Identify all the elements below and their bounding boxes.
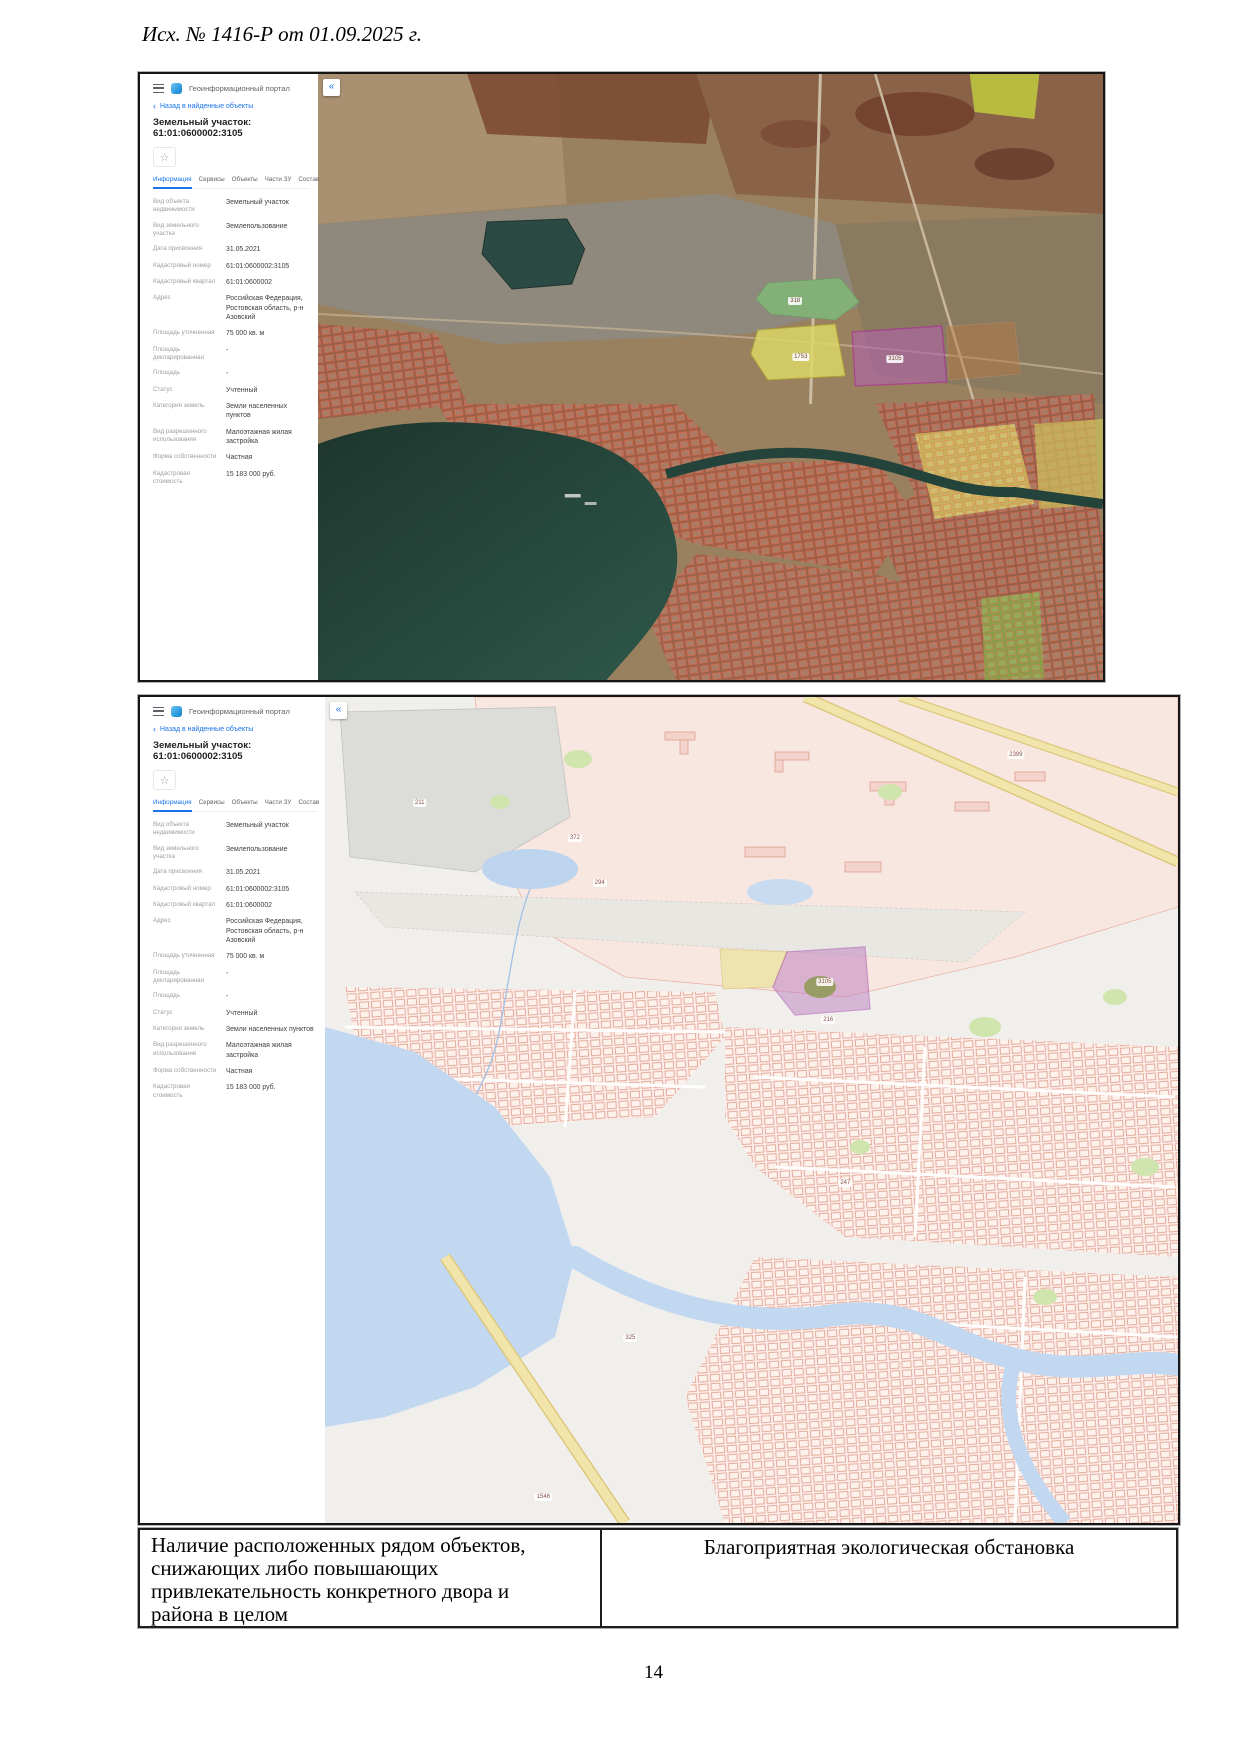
attribute-label: Дата присвоения: [153, 245, 217, 254]
back-link-label: Назад в найденные объекты: [160, 103, 253, 110]
attribute-row: Кадастровая стоимость 15 183 000 руб.: [153, 1083, 317, 1100]
app-title: Геоинформационный портал: [189, 84, 290, 93]
back-link[interactable]: ‹ Назад в найденные объекты: [153, 726, 317, 733]
tab[interactable]: Сервисы: [199, 176, 225, 183]
attribute-row: Площадь декларированная -: [153, 969, 317, 986]
criteria-table: Наличие расположенных рядом объектов, сн…: [138, 1528, 1178, 1628]
attribute-label: Площадь: [153, 992, 217, 1001]
attribute-label: Категория земель: [153, 402, 217, 421]
attribute-row: Категория земель Земли населенных пункто…: [153, 402, 310, 421]
parcel-number-label: 318: [788, 297, 802, 305]
collapse-sidebar-button[interactable]: «: [330, 702, 347, 719]
attribute-row: Площадь декларированная -: [153, 346, 310, 363]
menu-icon[interactable]: [153, 84, 164, 93]
attribute-row: Статус Учтенный: [153, 1009, 317, 1018]
attribute-label: Дата присвоения: [153, 868, 217, 877]
tab[interactable]: Объекты: [232, 176, 258, 183]
star-icon: ☆: [160, 774, 170, 787]
attribute-value: Частная: [226, 453, 310, 462]
attribute-row: Кадастровый номер 61:01:0600002:3105: [153, 262, 310, 271]
attribute-label: Кадастровый номер: [153, 262, 217, 271]
tab[interactable]: Сервисы: [199, 799, 225, 806]
tab[interactable]: Состав: [298, 176, 319, 183]
criteria-cell: Наличие расположенных рядом объектов, сн…: [140, 1530, 602, 1626]
attribute-label: Вид земельного участка: [153, 222, 217, 239]
back-chevron-icon: ‹: [153, 103, 156, 110]
attribute-row: Адрес Российская Федерация, Ростовская о…: [153, 917, 317, 945]
parcel-number-label: 211: [413, 799, 427, 807]
attribute-value: Землепользование: [226, 222, 310, 239]
gis-screenshot-satellite: Геоинформационный портал ‹ Назад в найде…: [138, 72, 1105, 682]
attribute-row: Кадастровый номер 61:01:0600002:3105: [153, 885, 317, 894]
attribute-label: Адрес: [153, 294, 217, 322]
star-icon: ☆: [160, 151, 170, 164]
attribute-value: Учтенный: [226, 1009, 317, 1018]
attribute-label: Форма собственности: [153, 453, 217, 462]
attribute-label: Категория земель: [153, 1025, 217, 1034]
attribute-label: Кадастровая стоимость: [153, 1083, 217, 1100]
back-chevron-icon: ‹: [153, 726, 156, 733]
attribute-row: Форма собственности Частная: [153, 1067, 317, 1076]
map-satellite[interactable]: «: [318, 74, 1103, 680]
attribute-row: Кадастровая стоимость 15 183 000 руб.: [153, 470, 310, 487]
tab[interactable]: Части ЗУ: [265, 799, 292, 806]
parcel-title: Земельный участок: 61:01:0600002:3105: [153, 117, 310, 139]
attribute-value: Частная: [226, 1067, 317, 1076]
gis-topbar: Геоинформационный портал: [153, 83, 310, 94]
attribute-label: Вид разрешенного использования: [153, 428, 217, 447]
tab[interactable]: Части ЗУ: [265, 176, 292, 183]
gis-screenshot-scheme: Геоинформационный портал ‹ Назад в найде…: [138, 695, 1180, 1525]
river-satellite: [318, 422, 677, 680]
favorite-button[interactable]: ☆: [153, 147, 176, 167]
attribute-value: -: [226, 969, 317, 986]
attribute-row: Форма собственности Частная: [153, 453, 310, 462]
assessment-cell: Благоприятная экологическая обстановка: [602, 1530, 1176, 1626]
attribute-row: Вид объекта недвижимости Земельный участ…: [153, 198, 310, 215]
attribute-value: 75 000 кв. м: [226, 952, 317, 961]
attribute-label: Площадь декларированная: [153, 346, 217, 363]
pond: [482, 849, 578, 889]
attribute-label: Кадастровый номер: [153, 885, 217, 894]
attribute-value: Российская Федерация, Ростовская область…: [226, 917, 317, 945]
tab-bar: ИнформацияСервисыОбъектыЧасти ЗУСостав: [153, 176, 310, 189]
attribute-value: 61:01:0600002:3105: [226, 262, 310, 271]
tab[interactable]: Информация: [153, 176, 192, 183]
attribute-row: Вид земельного участка Землепользование: [153, 845, 317, 862]
attribute-value: Земельный участок: [226, 198, 310, 215]
attribute-list: Вид объекта недвижимости Земельный участ…: [153, 821, 317, 1100]
portal-logo-icon: [171, 83, 182, 94]
yellow-parcel: [751, 324, 846, 380]
attribute-row: Площадь -: [153, 369, 310, 378]
attribute-label: Площадь: [153, 369, 217, 378]
attribute-value: Малоэтажная жилая застройка: [226, 428, 310, 447]
attribute-row: Вид земельного участка Землепользование: [153, 222, 310, 239]
collapse-sidebar-button[interactable]: «: [323, 79, 340, 96]
parcel-number-label: 247: [838, 1179, 852, 1187]
portal-logo-icon: [171, 706, 182, 717]
attribute-label: Кадастровая стоимость: [153, 470, 217, 487]
tab-bar: ИнформацияСервисыОбъектыЧасти ЗУСостав: [153, 799, 317, 812]
attribute-row: Категория земель Земли населенных пункто…: [153, 1025, 317, 1034]
attribute-label: Статус: [153, 1009, 217, 1018]
back-link-label: Назад в найденные объекты: [160, 726, 253, 733]
back-link[interactable]: ‹ Назад в найденные объекты: [153, 103, 310, 110]
page-number: 14: [0, 1662, 1241, 1684]
attribute-row: Дата присвоения 31.05.2021: [153, 245, 310, 254]
attribute-label: Адрес: [153, 917, 217, 945]
attribute-label: Площадь уточненная: [153, 329, 217, 338]
app-title: Геоинформационный портал: [189, 707, 290, 716]
parcel-number-label: 294: [593, 879, 607, 887]
gis-topbar: Геоинформационный портал: [153, 706, 317, 717]
attribute-row: Кадастровый квартал 61:01:0600002: [153, 901, 317, 910]
attribute-label: Вид земельного участка: [153, 845, 217, 862]
attribute-row: Кадастровый квартал 61:01:0600002: [153, 278, 310, 287]
attribute-list: Вид объекта недвижимости Земельный участ…: [153, 198, 310, 486]
favorite-button[interactable]: ☆: [153, 770, 176, 790]
document-reference-number: Исх. № 1416-Р от 01.09.2025 г.: [142, 22, 422, 47]
attribute-value: 61:01:0600002: [226, 278, 310, 287]
parcel-number-label: 1753: [792, 353, 809, 361]
scheme-map-graphic: [325, 697, 1178, 1523]
attribute-row: Вид разрешенного использования Малоэтажн…: [153, 428, 310, 447]
tab[interactable]: Информация: [153, 799, 192, 806]
attribute-value: Земельный участок: [226, 821, 317, 838]
parcel-number-label: 3105: [886, 355, 903, 363]
attribute-row: Вид объекта недвижимости Земельный участ…: [153, 821, 317, 838]
attribute-label: Вид разрешенного использования: [153, 1041, 217, 1060]
parcel-number-label: 325: [623, 1334, 637, 1342]
attribute-value: 61:01:0600002:3105: [226, 885, 317, 894]
attribute-value: 15 183 000 руб.: [226, 470, 310, 487]
green-pond: [756, 278, 859, 320]
attribute-row: Статус Учтенный: [153, 386, 310, 395]
map-scheme[interactable]: «: [325, 697, 1178, 1523]
attribute-label: Площадь декларированная: [153, 969, 217, 986]
attribute-label: Форма собственности: [153, 1067, 217, 1076]
attribute-label: Площадь уточненная: [153, 952, 217, 961]
parcel-number-label: 3105: [816, 978, 833, 986]
attribute-label: Кадастровый квартал: [153, 278, 217, 287]
attribute-value: 61:01:0600002: [226, 901, 317, 910]
attribute-value: Малоэтажная жилая застройка: [226, 1041, 317, 1060]
satellite-map-graphic: [318, 74, 1103, 680]
parcel-number-label: 372: [568, 834, 582, 842]
attribute-row: Площадь уточненная 75 000 кв. м: [153, 329, 310, 338]
attribute-value: Земли населенных пунктов: [226, 1025, 317, 1034]
parcel-number-label: 1546: [535, 1493, 552, 1501]
attribute-value: Землепользование: [226, 845, 317, 862]
parcel-title: Земельный участок: 61:01:0600002:3105: [153, 740, 317, 762]
attribute-value: -: [226, 346, 310, 363]
attribute-row: Вид разрешенного использования Малоэтажн…: [153, 1041, 317, 1060]
attribute-label: Вид объекта недвижимости: [153, 198, 217, 215]
parcel-number-label: 2399: [1007, 751, 1024, 759]
attribute-value: 15 183 000 руб.: [226, 1083, 317, 1100]
attribute-value: Российская Федерация, Ростовская область…: [226, 294, 310, 322]
attribute-value: 31.05.2021: [226, 245, 310, 254]
gis-sidebar: Геоинформационный портал ‹ Назад в найде…: [140, 74, 318, 680]
attribute-value: Учтенный: [226, 386, 310, 395]
attribute-value: -: [226, 369, 310, 378]
attribute-row: Адрес Российская Федерация, Ростовская о…: [153, 294, 310, 322]
menu-icon[interactable]: [153, 707, 164, 716]
parcel-number-label: 216: [821, 1016, 835, 1024]
attribute-row: Площадь -: [153, 992, 317, 1001]
attribute-value: -: [226, 992, 317, 1001]
attribute-label: Статус: [153, 386, 217, 395]
attribute-label: Вид объекта недвижимости: [153, 821, 217, 838]
gis-sidebar: Геоинформационный портал ‹ Назад в найде…: [140, 697, 325, 1523]
attribute-label: Кадастровый квартал: [153, 901, 217, 910]
attribute-value: Земли населенных пунктов: [226, 402, 310, 421]
attribute-row: Площадь уточненная 75 000 кв. м: [153, 952, 317, 961]
tab[interactable]: Состав: [298, 799, 319, 806]
attribute-row: Дата присвоения 31.05.2021: [153, 868, 317, 877]
attribute-value: 31.05.2021: [226, 868, 317, 877]
attribute-value: 75 000 кв. м: [226, 329, 310, 338]
tab[interactable]: Объекты: [232, 799, 258, 806]
